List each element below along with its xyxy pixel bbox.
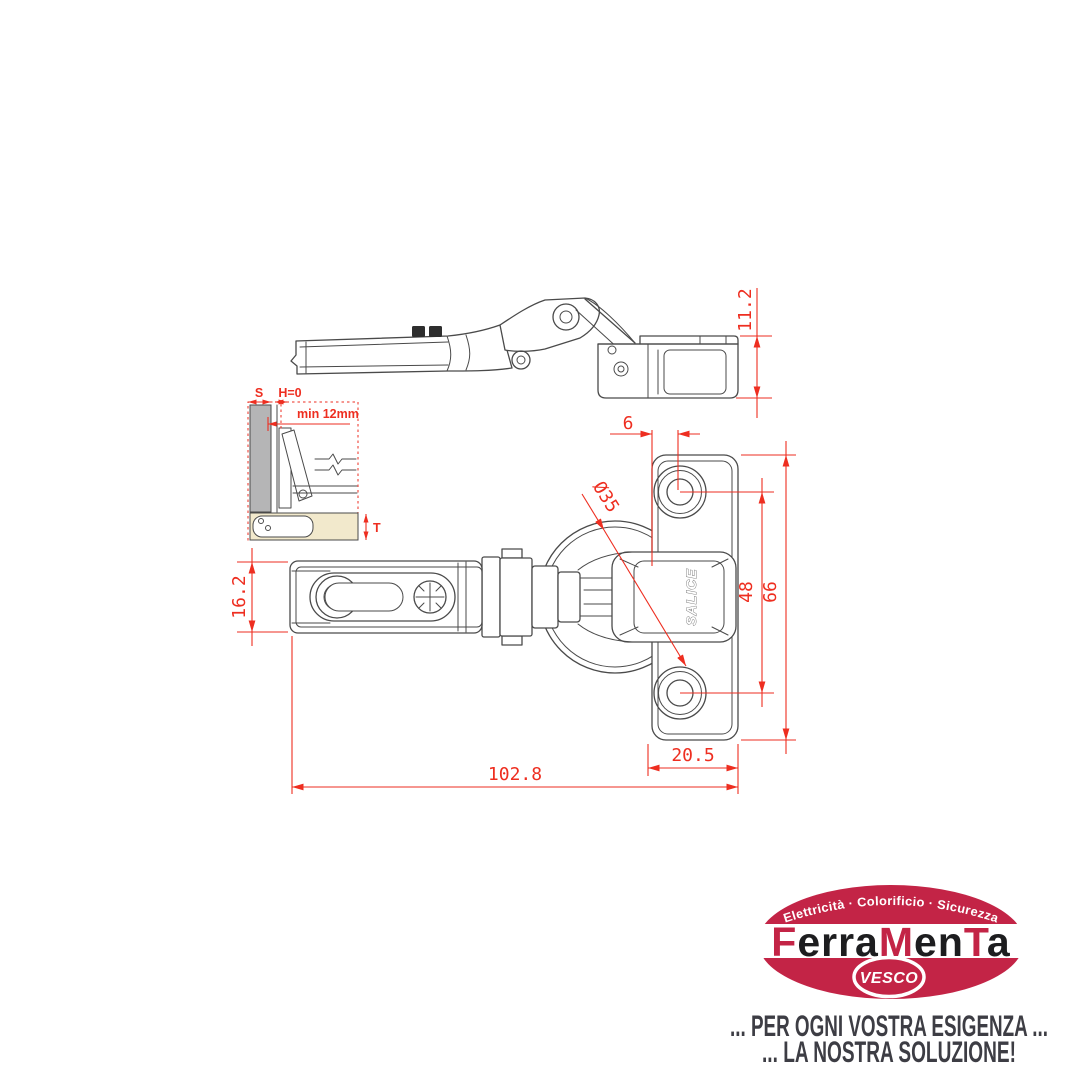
hinge-technical-drawing-page: S H=0 min 12mm T [0,0,1080,1080]
side-view-drawing [291,298,738,398]
dim-cup-diameter: Ø35 [588,478,623,517]
cross-section-inset: S H=0 min 12mm T [248,386,381,540]
drawing-canvas: S H=0 min 12mm T [0,0,1080,1080]
inset-label-t: T [373,521,381,535]
dim-hole-offset: 6 [623,413,634,434]
dim-plate-width: 20.5 [671,745,714,766]
dim-plate-height: 66 [760,581,781,603]
ferramenta-logo: Elettricità · Colorificio · Sicurezza Fe… [730,885,1048,1069]
dim-arm-width: 16.2 [229,575,250,618]
plate-boss [612,552,736,642]
adjustment-clip [412,326,425,337]
inset-label-s: S [255,386,263,400]
adjustment-clip [429,326,442,337]
dim-hole-spacing: 48 [736,581,757,603]
part-brand-text: SALICE [683,568,699,625]
hinge-arm [290,561,482,633]
vesco-badge-text: VESCO [860,970,919,987]
front-view-drawing: SALICE [290,455,738,740]
inset-label-min-depth: min 12mm [297,407,359,421]
pivot-pin [512,351,530,369]
dim-overall-length: 102.8 [488,764,542,785]
dim-side-height: 11.2 [735,288,756,331]
tagline-line2: ... LA NOSTRA SOLUZIONE! [762,1036,1016,1069]
inset-label-h0: H=0 [278,386,301,400]
